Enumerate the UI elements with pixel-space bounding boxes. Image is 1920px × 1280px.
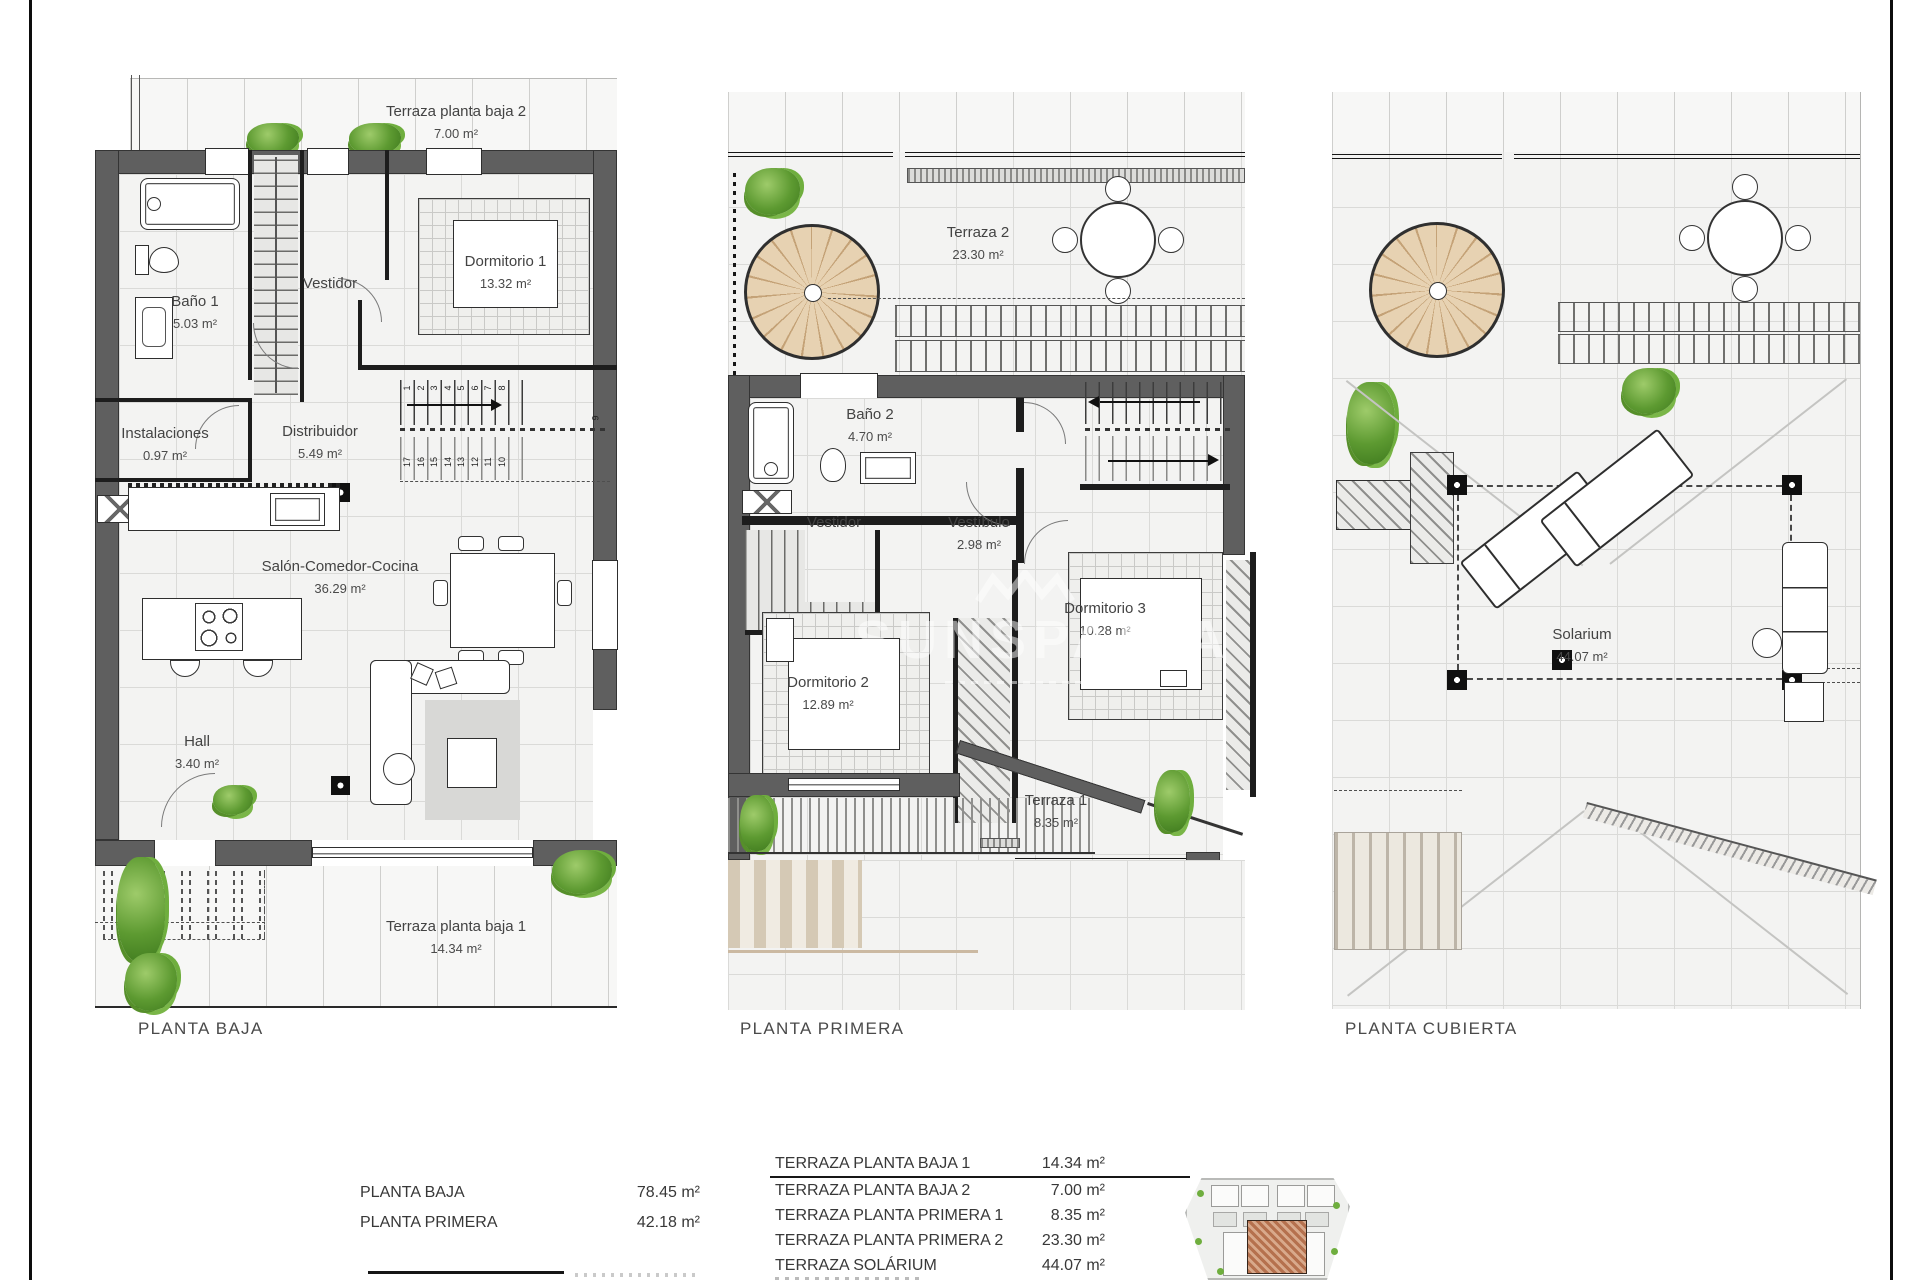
roof-overhang	[1332, 92, 1860, 152]
patio-steps	[728, 860, 862, 948]
frame-line-left	[29, 0, 32, 1280]
pergola-slats	[1558, 302, 1860, 332]
toilet-icon	[820, 448, 846, 482]
planter-bench	[980, 838, 1020, 848]
railing	[1332, 154, 1502, 159]
summary-divider	[770, 1176, 1190, 1178]
sliding-door	[312, 847, 533, 858]
chair-icon	[1105, 278, 1131, 304]
window	[205, 148, 249, 175]
room-label-dormitorio1: Dormitorio 1 13.32 m²	[438, 253, 573, 292]
coffee-table-icon	[1784, 682, 1824, 722]
column-post	[1449, 672, 1465, 688]
partition-wall	[1016, 398, 1024, 432]
terrace-edge-line	[728, 852, 1095, 854]
summary-terrace-value: 8.35 m²	[985, 1207, 1105, 1225]
window	[307, 148, 349, 175]
toilet-icon	[135, 245, 149, 275]
kitchen-sink-icon	[270, 493, 325, 526]
stair-step-numbers: 1716151413121110	[400, 457, 510, 467]
window	[592, 560, 618, 650]
dashed-guide	[1334, 790, 1462, 791]
window	[426, 148, 482, 175]
rooftop-unit	[1336, 480, 1420, 530]
round-table-icon	[1707, 200, 1783, 276]
sofa-icon	[1782, 542, 1828, 674]
plan-planta-primera: Terraza 2 23.30 m² Baño 2 4.70 m² Vestid…	[728, 90, 1258, 1012]
column-post	[333, 778, 348, 793]
partition-wall	[1250, 552, 1256, 797]
stair-step-number: 9	[591, 415, 601, 420]
round-table-icon	[1080, 202, 1156, 278]
floor-title-primera: PLANTA PRIMERA	[740, 1019, 904, 1039]
room-label-terraza2: Terraza 2 23.30 m²	[898, 224, 1058, 263]
partition-wall	[248, 150, 252, 380]
partition-wall	[1012, 560, 1018, 823]
dashed-guide	[828, 298, 1245, 299]
room-label-bano2: Baño 2 4.70 m²	[805, 406, 935, 445]
pouf-icon	[1752, 628, 1782, 658]
coffee-table-icon	[447, 738, 497, 788]
site-pad	[1213, 1212, 1237, 1227]
summary-terrace-value: 7.00 m²	[985, 1182, 1105, 1200]
room-label-vestidor2: Vestidor	[774, 514, 894, 533]
summary-terrace-value: 14.34 m²	[985, 1155, 1105, 1173]
pergola-slats	[1558, 334, 1860, 364]
column-post	[1784, 477, 1800, 493]
chair-icon	[1105, 176, 1131, 202]
room-label-hall: Hall 3.40 m²	[137, 733, 257, 772]
chair-icon	[1679, 225, 1705, 251]
stair-step-numbers: 12345678	[400, 383, 510, 393]
partition-wall	[1080, 484, 1230, 490]
pillow-icon	[766, 618, 794, 662]
cutoff-row-marks	[575, 1273, 695, 1277]
stair-direction-arrow	[1088, 396, 1099, 408]
toilet-icon	[149, 247, 179, 273]
summary-terrace-value: 44.07 m²	[985, 1257, 1105, 1275]
stair-direction-arrow	[491, 399, 502, 411]
floorplan-sheet: 12345678 1716151413121110 9	[0, 0, 1920, 1280]
nightstand-icon	[1160, 670, 1187, 687]
site-tree	[1195, 1238, 1202, 1245]
spiral-staircase-icon	[744, 224, 880, 360]
railing	[728, 152, 893, 157]
room-label-vestibulo: Vestíbulo 2.98 m²	[899, 514, 1059, 553]
vanity-icon	[860, 452, 916, 484]
room-label-terraza1: Terraza 1 8.35 m²	[986, 792, 1126, 831]
spiral-staircase-icon	[1369, 222, 1505, 358]
stair-landing-dots	[1085, 428, 1230, 431]
site-building	[1211, 1185, 1239, 1207]
site-plan-minimap	[1185, 1178, 1350, 1280]
stair-direction-arrow	[1208, 454, 1219, 466]
site-tree	[1217, 1268, 1224, 1275]
wall-segment	[95, 150, 617, 174]
pergola-slats	[895, 340, 1245, 372]
chair-icon	[1785, 225, 1811, 251]
dining-table-icon	[450, 553, 555, 648]
summary-area-label: PLANTA BAJA	[360, 1184, 580, 1202]
stair-landing-dots	[400, 428, 610, 431]
wardrobe-icon	[1226, 560, 1250, 790]
site-building	[1307, 1185, 1335, 1207]
summary-area-label: PLANTA PRIMERA	[360, 1214, 580, 1232]
room-label-solarium: Solarium 44.07 m²	[1502, 626, 1662, 665]
stair-band	[1334, 832, 1462, 950]
chair-icon	[557, 580, 572, 606]
hob-icon	[195, 603, 243, 651]
plant-icon	[740, 795, 774, 851]
room-label-bano1: Baño 1 5.03 m²	[135, 293, 255, 332]
partition-wall	[358, 365, 617, 370]
rooftop-unit	[1410, 452, 1454, 564]
site-building	[1277, 1185, 1305, 1207]
site-tree	[1197, 1190, 1204, 1197]
pouf-icon	[383, 753, 415, 785]
plant-icon	[1347, 382, 1395, 464]
floor-title-cubierta: PLANTA CUBIERTA	[1345, 1019, 1518, 1039]
site-building	[1241, 1185, 1269, 1207]
summary-area-value: 78.45 m²	[580, 1184, 700, 1202]
chair-icon	[1732, 174, 1758, 200]
frame-line-right	[1890, 0, 1893, 1280]
site-tree	[1333, 1202, 1340, 1209]
summary-terrace-value: 23.30 m²	[985, 1232, 1105, 1250]
summary-area-value: 42.18 m²	[580, 1214, 700, 1232]
chair-icon	[1158, 227, 1184, 253]
plant-icon	[1155, 770, 1190, 832]
site-tree	[1331, 1248, 1338, 1255]
chair-icon	[1732, 276, 1758, 302]
room-label-dormitorio2: Dormitorio 2 12.89 m²	[758, 674, 898, 713]
chair-icon	[458, 536, 484, 551]
planter-bench	[907, 168, 1245, 183]
railing	[1514, 154, 1860, 159]
column-post	[1449, 477, 1465, 493]
stair-void-line	[400, 481, 610, 482]
terrace-edge-line	[728, 950, 978, 953]
plan-planta-cubierta: Solarium 44.07 m²	[1332, 90, 1862, 1012]
window	[800, 373, 878, 400]
room-label-instalaciones: Instalaciones 0.97 m²	[105, 425, 225, 464]
railing	[905, 152, 1245, 157]
party-wall-lines	[131, 75, 140, 151]
room-label-terraza-pb1: Terraza planta baja 1 14.34 m²	[356, 918, 556, 957]
wall-segment	[215, 840, 312, 866]
faucet-icon	[764, 462, 778, 476]
room-label-terraza-pb2: Terraza planta baja 2 7.00 m²	[366, 103, 546, 142]
stair-direction-line	[407, 404, 493, 406]
site-highlight-unit	[1247, 1220, 1307, 1274]
room-label-vestidor: Vestidor	[270, 275, 390, 294]
room-label-distribuidor: Distribuidor 5.49 m²	[245, 423, 395, 462]
room-label-salon: Salón-Comedor-Cocina 36.29 m²	[215, 558, 465, 597]
pergola-slats	[895, 305, 1245, 337]
chair-icon	[498, 536, 524, 551]
faucet-icon	[147, 197, 161, 211]
stair-direction-line	[1100, 401, 1200, 403]
window	[788, 778, 900, 791]
staircase-up	[1085, 382, 1230, 424]
cutoff-row-line	[368, 1271, 564, 1274]
room-label-dormitorio3: Dormitorio 3 10.28 m²	[1035, 600, 1175, 639]
stair-direction-line	[1108, 460, 1208, 462]
site-pad	[1305, 1212, 1329, 1227]
floor-title-baja: PLANTA BAJA	[138, 1019, 263, 1039]
vent-louvre	[742, 490, 792, 514]
terrace-edge-line	[95, 1006, 617, 1008]
partition-wall	[385, 150, 389, 280]
plan-planta-baja: 12345678 1716151413121110 9	[95, 75, 617, 1012]
partition-wall	[95, 478, 252, 482]
plant-icon	[117, 857, 165, 962]
partition-wall	[95, 398, 252, 402]
roof-overhang	[728, 92, 1245, 152]
